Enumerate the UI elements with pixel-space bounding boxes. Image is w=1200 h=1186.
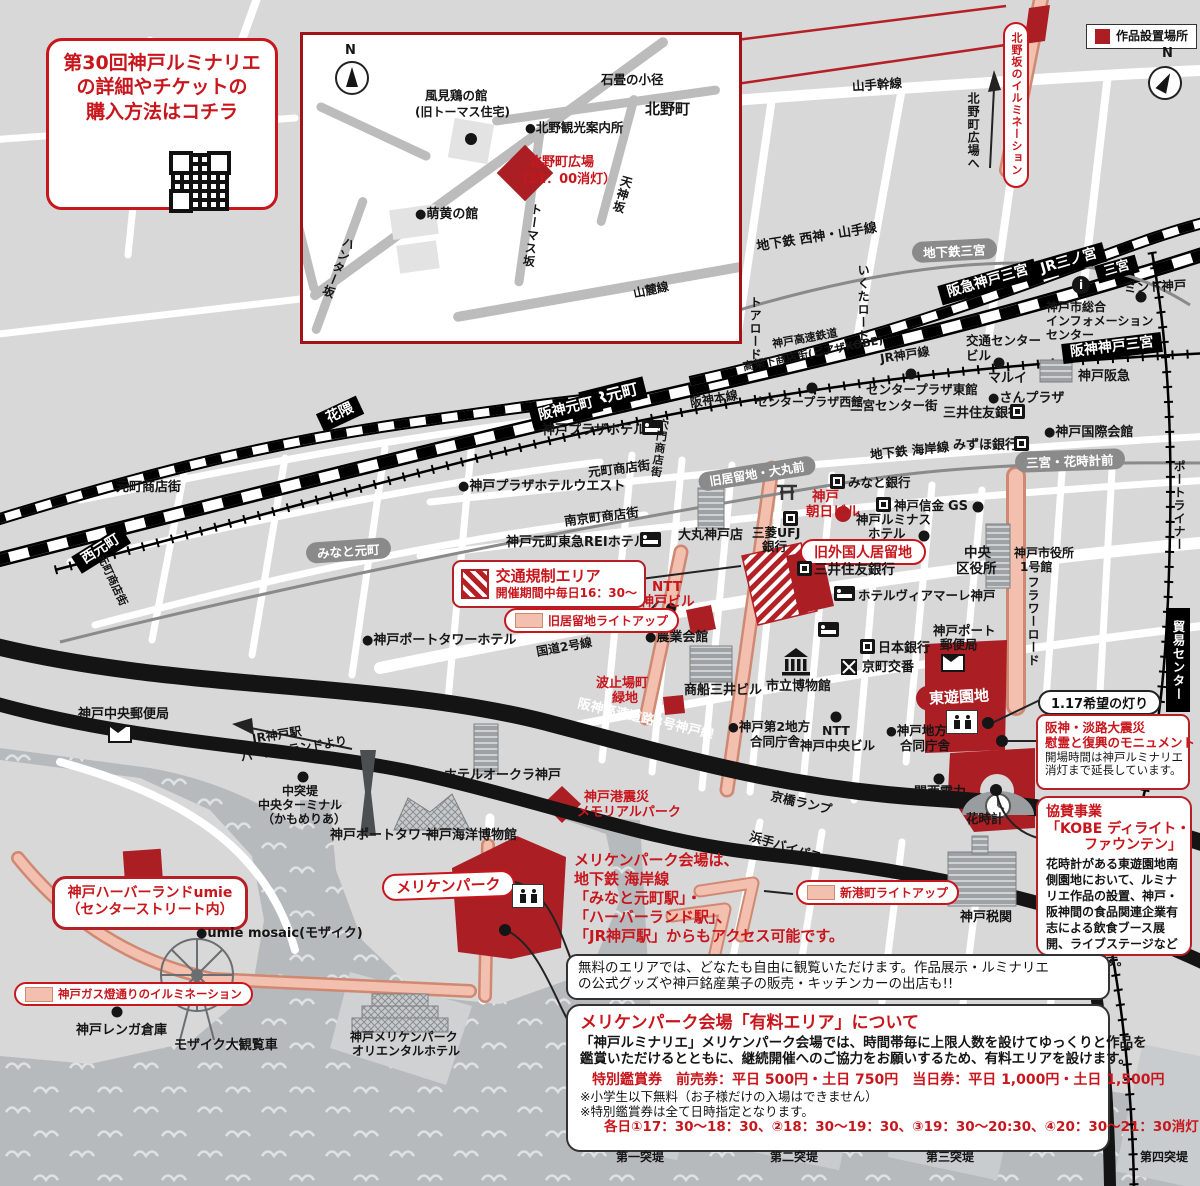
bank-icon [783,511,798,526]
ticket-info-box: 第30回神戸ルミナリエ の詳細やチケットの 購入方法はコチラ [46,38,278,210]
qr-code [171,153,229,211]
ntt-chuo-l2: 神戸中央ビル [800,739,875,754]
inset-compass-icon [335,61,369,95]
kyoryuchi-lightup-pill: 旧居留地ライトアップ [504,608,679,633]
kitano-plaza-time: （21：00消灯） [515,172,616,187]
hotel-icon [640,532,661,547]
post-office-icon [108,725,132,743]
mol-building-label: 商船三井ビル [684,683,762,698]
center-plaza-west-label: センタープラザ西館 [756,395,863,409]
inset-compass-n: N [345,43,356,58]
legend-label: 作品設置場所 [1116,29,1188,43]
mosaic-wheel-label: モザイク大観覧車 [174,1038,278,1053]
gas-light-pill: 神戸ガス燈通りのイルミネーション [14,982,253,1006]
compass-n: N [1162,46,1173,61]
hanadokei-label: 花時計 [966,812,1004,827]
lightup-swatch [515,613,543,628]
legend-artwork-sites: 作品設置場所 [1086,24,1197,49]
daimaru-label: 大丸神戸店 [678,528,743,543]
tottei3-label: 第三突堤 [926,1150,974,1164]
artwork-site-swatch [1095,29,1110,44]
port-liner-label: ポートライナー [1172,460,1186,551]
regulation-l2: 開催期間中毎日16：30〜 [496,586,637,600]
nakatottei-l2: 中央ターミナル [258,798,342,812]
paid-area-box: メリケンパーク会場「有料エリア」について 「神戸ルミナリエ」メリケンパーク会場で… [566,1004,1110,1152]
qr-finder [169,151,193,175]
info-center-l2: インフォメーション [1046,314,1153,328]
toa-road-label: トアロード [748,296,762,361]
compass-needle [1155,70,1175,93]
free-l1: 無料のエリアでは、どなたも自由に観覧いただけます。作品展示・ルミナリエ [578,961,1098,977]
hotel-okura-label: ホテルオークラ神戸 [444,768,561,783]
person-glyph [530,889,537,903]
asahi-bldg-l2: 朝日ビル [806,505,860,521]
monument-t1: 阪神・淡路大震災 [1045,721,1181,736]
shiyakusho-l1: 神戸市役所 [1014,546,1074,560]
free-area-box: 無料のエリアでは、どなたも自由に観覧いただけます。作品展示・ルミナリエ の公式グ… [566,954,1110,1000]
shinminato-lightup-pill: 新港町ライトアップ [796,880,959,905]
paid-note1: ※小学生以下無料（お子様だけの入場はできません） [580,1090,1096,1105]
bank-icon [797,561,812,576]
person-glyph [519,889,526,903]
godo1-l2: 合同庁舎 [900,739,950,754]
sponsor-box: 協賛事業 「KOBE ディライト・ ファウンテン」 花時計がある東遊園地南側園地… [1036,796,1192,956]
person-glyph [964,715,971,729]
umie-l1: 神戸ハーバーランドumie [55,885,245,902]
meriken-oriental-l1: 神戸メリケンパーク [350,1030,458,1044]
info-center-l1: 神戸市総合 [1046,300,1106,314]
kanden-label: 関西電力 [914,785,966,800]
traffic-regulation-box: 交通規制エリア 開催期間中毎日16：30〜 [452,560,646,608]
bank-icon [876,497,891,512]
smbc-kyoryuchi-label: 三井住友銀行 [814,563,895,579]
kitano-inset-map: N 風見鶏の館 (旧トーマス住宅) ●北野観光案内所 石畳の小径 北野町 北野町… [300,32,742,344]
paid-times: 各日①17：30～18：30、②18：30～19：30、③19：30～20:30… [604,1120,1096,1136]
sponsor-body: 花時計がある東遊園地南側園地において、ルミナリエ作品の設置、神戸・阪神間の食品関… [1046,856,1182,969]
bank-icon [1010,404,1025,419]
hope-light-pill: 1.17希望の灯り [1038,690,1161,715]
godo2-l1: ●神戸第2地方 [728,720,810,735]
station-chikatetsu-sannomiya: 地下鉄三宮 [912,238,997,263]
port-post-l2: 郵便局 [940,638,978,653]
bank-icon [860,639,875,654]
info-icon: i [1072,276,1090,294]
hotel-icon [834,586,855,601]
museum-label: 市立博物館 [766,679,831,694]
sponsor-t2: 「KOBE ディライト・ [1046,821,1182,838]
chuo-post-label: 神戸中央郵便局 [78,707,169,722]
boeki-center-label-box: 貿易センター [1166,608,1190,712]
shinminato-lightup-label: 新港町ライトアップ [840,884,948,901]
regulation-swatch [461,569,489,599]
kokusai-kaikan-label: ●神戸国際会館 [1044,425,1133,440]
mufg-l2: 銀行 [762,540,787,555]
port-tower-label: 神戸ポートタワー [330,828,434,843]
center-plaza-east-label: センタープラザ東館 [866,383,978,398]
bank-icon [830,474,845,489]
kotsu-center-l1: 交通センター [966,334,1041,349]
lightup-swatch [25,987,53,1002]
inset-road-sanroku [452,261,742,322]
ntt-chuo-l1: NTT [822,724,850,739]
qr-finder [207,151,231,175]
harborland-umie-box: 神戸ハーバーランドumie （センターストリート内） [52,876,248,930]
access-l1: メリケンパーク会場は、 [574,852,739,870]
ikuta-road-label: いくたロード [856,264,870,342]
gs-label: GS [948,499,968,514]
port-tower-hotel-label: ●神戸ポートタワーホテル [362,633,516,648]
free-l2: の公式グッズや神戸銘産菓子の販売・キッチンカーの出店も!! [578,977,1098,993]
chuo-kuyakusho-l1: 中央 [964,546,991,562]
kitano-plaza-label: 北野町広場 [529,155,594,170]
kitanozaka-illumination-pill: 北野坂のイルミネーション [1003,22,1029,188]
hatoba-l1: 波止場町 [596,676,648,691]
nakatottei-l1: 中突堤 [282,784,318,798]
monument-b2: 消灯まで延長しています。 [1045,764,1181,778]
kitanozaka-label: 北野坂のイルミネーション [1008,32,1024,176]
poi-dot [465,133,477,145]
kobe-hankyu-label: 神戸阪急 [1078,369,1130,384]
bank-icon [1014,436,1029,451]
to-kitano-plaza-label: 北野町広場へ [966,92,980,170]
tokyu-rei-hotel-label: 神戸元町東急REIホテル [506,535,647,550]
paid-title: メリケンパーク会場「有料エリア」について [580,1013,1096,1033]
kobe-luminarie-map: 第30回神戸ルミナリエ の詳細やチケットの 購入方法はコチラ 作品設置場所 N … [0,0,1200,1186]
sponsor-t3: ファウンテン」 [1046,837,1182,854]
kotsu-center-l2: ビル [966,349,991,364]
kazamidori-label: 風見鶏の館 [425,89,488,104]
ticket-line1: 第30回神戸ルミナリエ [49,51,275,75]
gas-light-label: 神戸ガス燈通りのイルミネーション [58,986,242,1002]
post-office-icon [941,654,965,672]
umie-l2: （センターストリート内） [55,902,245,919]
kyoryuchi-lightup-label: 旧居留地ライトアップ [548,612,668,629]
chuo-kuyakusho-l2: 区役所 [956,562,997,578]
marui-label: マルイ [988,371,1027,386]
access-l4: 「ハーバーランド駅」、 [574,909,731,927]
boj-label: 日本銀行 [878,641,930,656]
boeki-center-label: 貿易センター [1169,620,1188,701]
monument-box: 阪神・淡路大震災 慰霊と復興のモニュメント 開場時間は神戸ルミナリエ 消灯まで延… [1036,714,1190,790]
regulation-l1: 交通規制エリア [496,568,637,586]
kitano-info-label: ●北野観光案内所 [525,121,623,136]
minato-bank-label: みなと銀行 [848,476,911,491]
nakatottei-l3: （かもめりあ） [262,812,346,826]
kitanocho-label: 北野町 [645,101,690,119]
umie-mosaic-label: ●umie mosaic(モザイク) [196,926,363,941]
paid-price: 特別鑑賞券 前売券：平日 500円・土日 750円 当日券：平日 1,000円・… [592,1072,1096,1089]
access-l3: 「みなと元町駅」・ [574,890,702,908]
koban-icon [841,659,857,675]
zeikan-label: 神戸税関 [960,910,1012,925]
memorial-l1: 神戸港震災 [584,790,649,805]
person-glyph [953,715,960,729]
shiyakusho-l2: 1号館 [1020,560,1052,574]
hotel-via-mare-label: ホテルヴィアマーレ神戸 [858,589,996,604]
access-l5: 「JR神戸駅」からもアクセス可能です。 [574,928,844,946]
kobe-plaza-hotel-label: 神戸プラザホテル [542,423,646,438]
toilet-icon [946,710,978,734]
plaza-hotel-west-label: ●神戸プラザホテルウエスト [458,479,625,494]
motomachi-shotengai-label: 元町商店街 [116,480,181,495]
ticket-line3: 購入方法はコチラ [49,100,275,124]
maritime-museum-label: 神戸海洋博物館 [426,828,517,843]
monument-t2: 慰霊と復興のモニュメント [1045,736,1181,751]
moegi-label: ●萌黄の館 [415,207,478,222]
qr-finder [169,189,193,213]
paid-body1: 「神戸ルミナリエ」メリケンパーク会場では、時間帯毎に上限人数を設けてゆっくりと作… [580,1036,1096,1052]
access-l2: 地下鉄 海岸線 [574,871,669,889]
meriken-park-pill: メリケンパーク [382,870,515,902]
godo2-l2: 合同庁舎 [750,735,800,750]
ishidatami-label: 石畳の小径 [601,73,664,88]
memorial-l2: メモリアルパーク [577,805,681,820]
mizuho-label: みずほ銀行 [953,438,1018,453]
koban-label: 京町交番 [862,660,914,675]
lightup-swatch [807,885,835,900]
kazamidori-sub: (旧トーマス住宅) [415,105,510,119]
inset-building [396,240,440,273]
paid-body2: 鑑賞いただけるとともに、継続開催へのご協力をお願いするため、有料エリアを設けます… [580,1052,1096,1068]
sponsor-t1: 協賛事業 [1046,804,1182,821]
paid-note2: ※特別鑑賞券は全て日時指定となります。 [580,1105,1096,1120]
sanplaza-label: ●さんプラザ [988,391,1064,406]
ticket-line2: の詳細やチケットの [49,75,275,99]
tottei2-label: 第二突堤 [770,1150,818,1164]
inset-road [300,112,319,294]
tottei4-label: 第四突堤 [1140,1150,1188,1164]
hotel-icon [818,622,839,637]
toilet-icon [512,884,544,908]
monument-b1: 開場時間は神戸ルミナリエ [1045,751,1181,765]
tottei1-label: 第一突堤 [616,1150,664,1164]
meriken-oriental-l2: オリエンタルホテル [352,1044,460,1058]
flower-road-label: フラワーロード [1026,576,1040,667]
compass-needle [346,67,358,87]
godo1-l1: ●神戸地方 [886,724,947,739]
renga-warehouse-label: 神戸レンガ倉庫 [76,1023,167,1038]
station-sannomiya-hanadokei-mae: 三宮・花時計前 [1015,448,1125,473]
higashi-yuenchi-pill: 東遊園地 [915,682,1002,711]
